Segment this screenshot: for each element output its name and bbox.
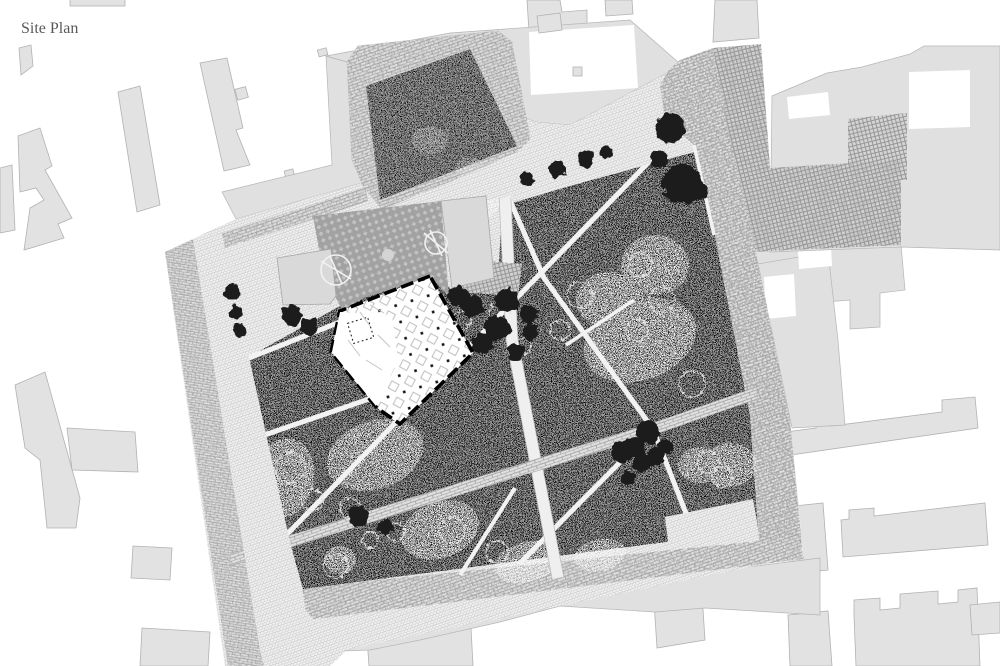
svg-text:Site Plan: Site Plan [21, 20, 78, 37]
